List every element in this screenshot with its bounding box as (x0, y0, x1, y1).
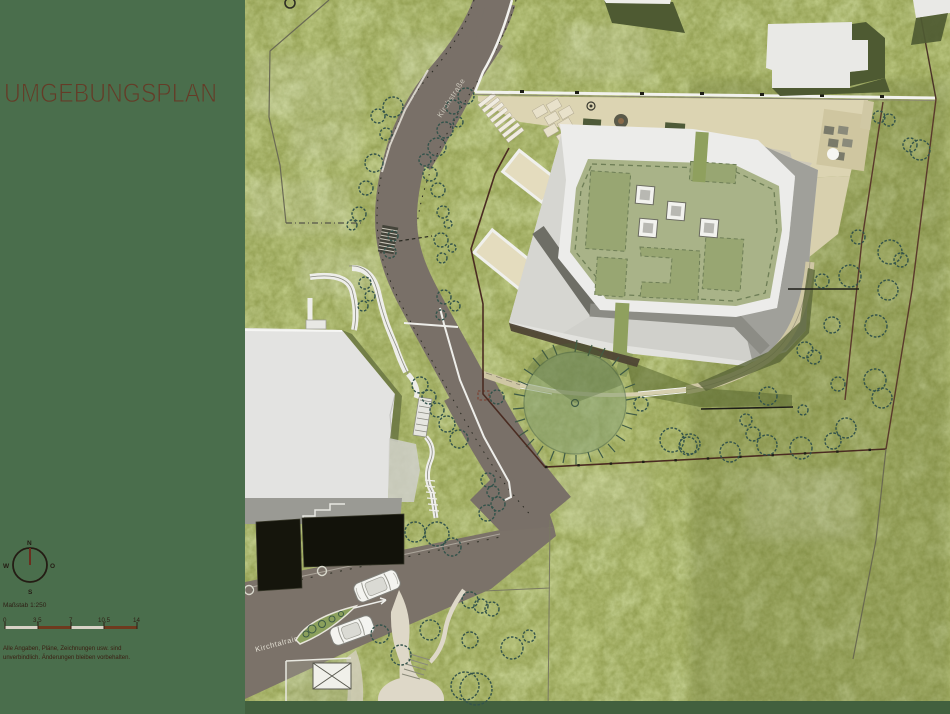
svg-text:10,5: 10,5 (98, 617, 111, 624)
svg-text:14: 14 (133, 617, 140, 624)
svg-text:O: O (50, 563, 55, 570)
svg-text:Alle Angaben, Pläne, Zeichnung: Alle Angaben, Pläne, Zeichnungen usw. si… (3, 646, 121, 652)
svg-text:UMGEBUNGSPLAN: UMGEBUNGSPLAN (4, 78, 217, 108)
svg-text:W: W (3, 563, 10, 570)
svg-text:7: 7 (69, 617, 73, 624)
svg-text:Maßstab 1:250: Maßstab 1:250 (3, 602, 47, 609)
svg-text:3,5: 3,5 (33, 617, 42, 624)
svg-text:N: N (27, 540, 32, 547)
svg-text:unverbindlich. Änderungen blei: unverbindlich. Änderungen bleiben vorbeh… (3, 654, 130, 661)
svg-text:S: S (28, 589, 33, 596)
svg-text:0: 0 (3, 617, 7, 624)
